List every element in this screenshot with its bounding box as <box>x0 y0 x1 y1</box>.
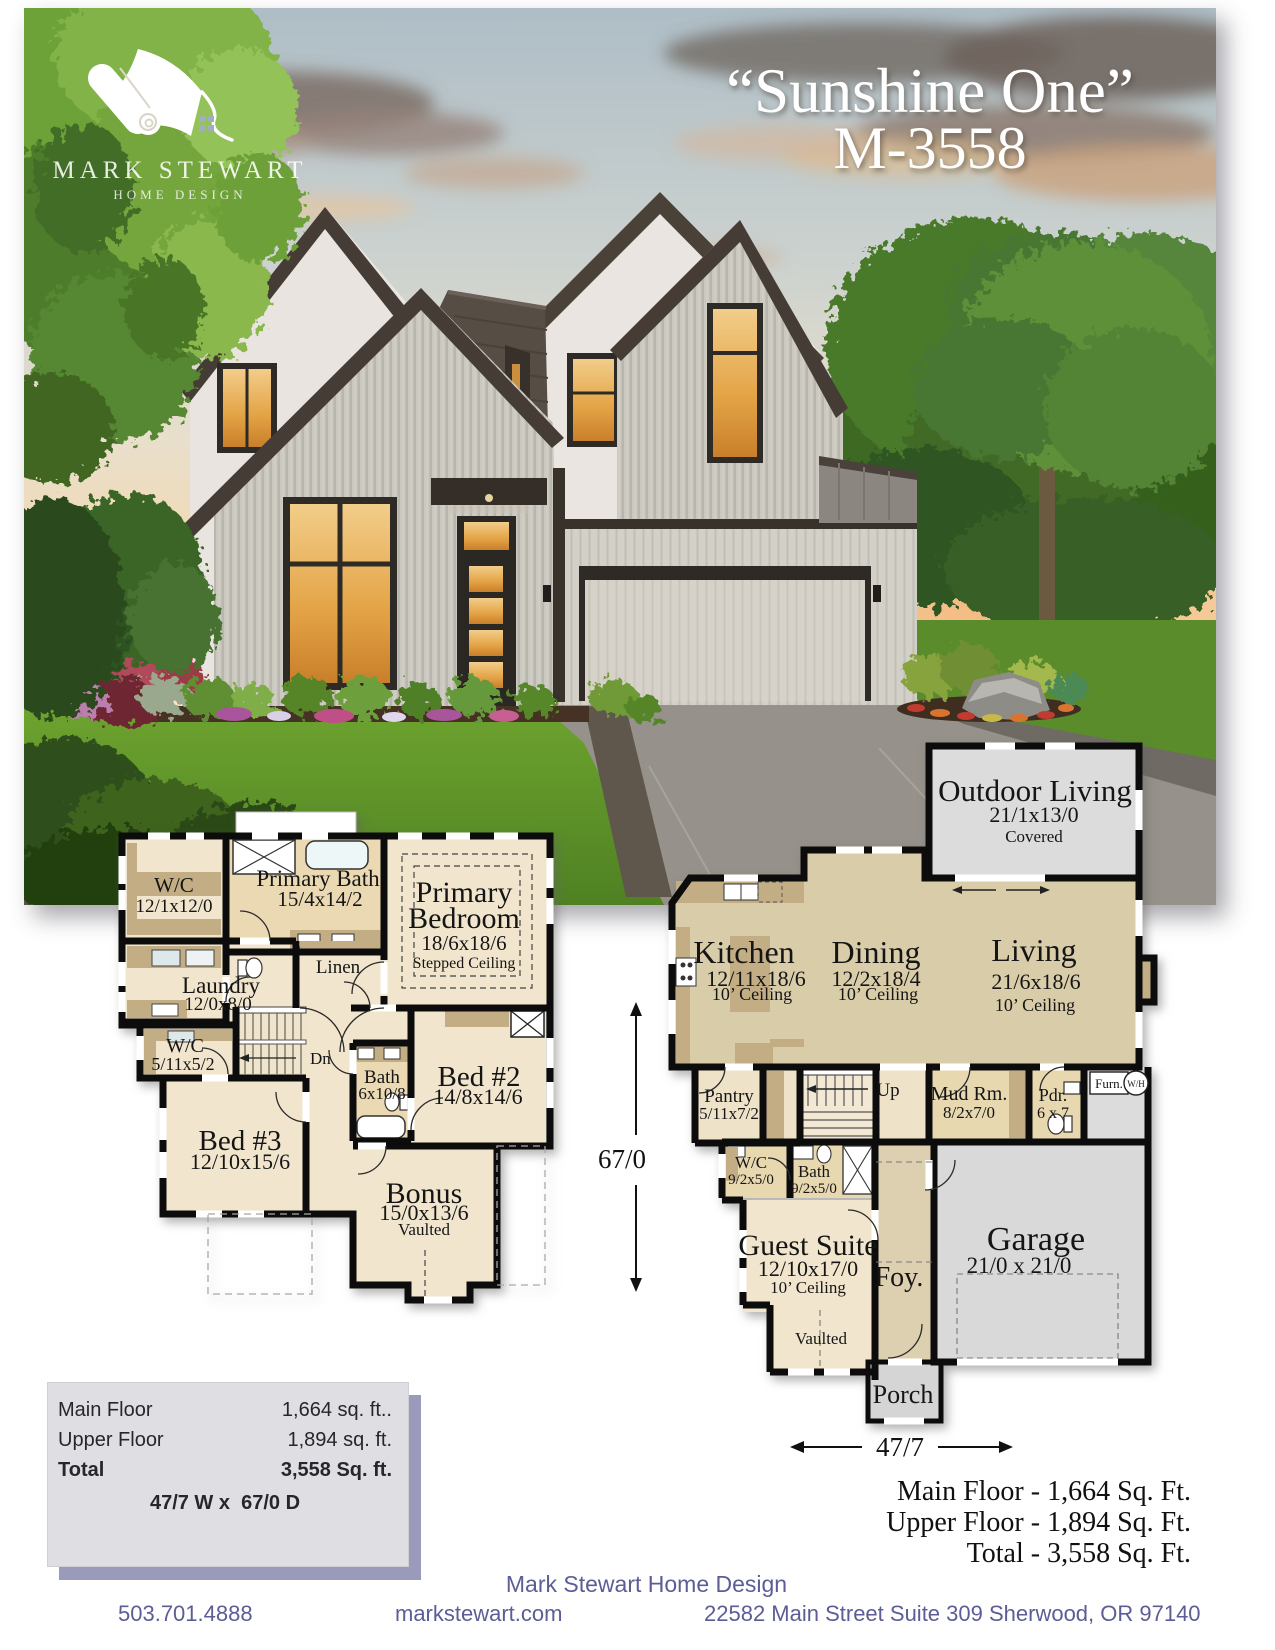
svg-text:Furn.: Furn. <box>1095 1076 1123 1091</box>
svg-text:12/1x12/0: 12/1x12/0 <box>135 896 212 917</box>
svg-text:W/C: W/C <box>154 873 194 897</box>
svg-text:10’ Ceiling: 10’ Ceiling <box>838 984 918 1004</box>
svg-text:Foy.: Foy. <box>875 1262 924 1293</box>
svg-text:Covered: Covered <box>1005 827 1063 846</box>
svg-text:12/0x8/0: 12/0x8/0 <box>184 994 252 1015</box>
svg-text:Vaulted: Vaulted <box>398 1220 450 1239</box>
svg-text:10’ Ceiling: 10’ Ceiling <box>712 984 792 1004</box>
svg-text:Stepped Ceiling: Stepped Ceiling <box>413 955 516 972</box>
svg-text:Living: Living <box>991 932 1076 968</box>
svg-text:10’ Ceiling: 10’ Ceiling <box>770 1278 846 1297</box>
svg-text:Pdr.: Pdr. <box>1039 1085 1068 1105</box>
svg-text:21/6x18/6: 21/6x18/6 <box>991 969 1080 994</box>
svg-text:Bath: Bath <box>798 1162 831 1181</box>
svg-text:6 x 7: 6 x 7 <box>1037 1105 1069 1122</box>
svg-text:21/0 x 21/0: 21/0 x 21/0 <box>967 1253 1072 1278</box>
svg-text:12/10x15/6: 12/10x15/6 <box>190 1149 290 1174</box>
svg-text:Up: Up <box>876 1080 899 1101</box>
svg-text:8/2x7/0: 8/2x7/0 <box>943 1103 995 1122</box>
svg-text:67/0: 67/0 <box>598 1144 646 1174</box>
svg-text:9/2x5/0: 9/2x5/0 <box>791 1181 837 1197</box>
svg-text:W/C: W/C <box>735 1153 767 1172</box>
svg-text:47/7: 47/7 <box>876 1432 924 1462</box>
svg-text:Dining: Dining <box>832 934 921 970</box>
svg-text:Dn: Dn <box>310 1049 331 1068</box>
svg-text:Linen: Linen <box>316 957 361 978</box>
svg-text:Kitchen: Kitchen <box>693 934 794 970</box>
svg-text:5/11x5/2: 5/11x5/2 <box>151 1054 214 1074</box>
svg-text:10’ Ceiling: 10’ Ceiling <box>995 995 1075 1015</box>
svg-text:Porch: Porch <box>873 1380 934 1409</box>
svg-text:18/6x18/6: 18/6x18/6 <box>421 931 506 955</box>
svg-text:9/2x5/0: 9/2x5/0 <box>728 1172 774 1188</box>
svg-text:5/11x7/2: 5/11x7/2 <box>699 1104 759 1123</box>
svg-text:15/4x14/2: 15/4x14/2 <box>277 887 362 911</box>
svg-text:Vaulted: Vaulted <box>795 1329 847 1348</box>
svg-text:21/1x13/0: 21/1x13/0 <box>989 802 1078 827</box>
svg-text:6x10/8: 6x10/8 <box>358 1084 405 1103</box>
svg-text:Mud Rm.: Mud Rm. <box>931 1083 1008 1105</box>
svg-text:14/8x14/6: 14/8x14/6 <box>433 1084 522 1109</box>
svg-text:W/H: W/H <box>1127 1079 1145 1089</box>
